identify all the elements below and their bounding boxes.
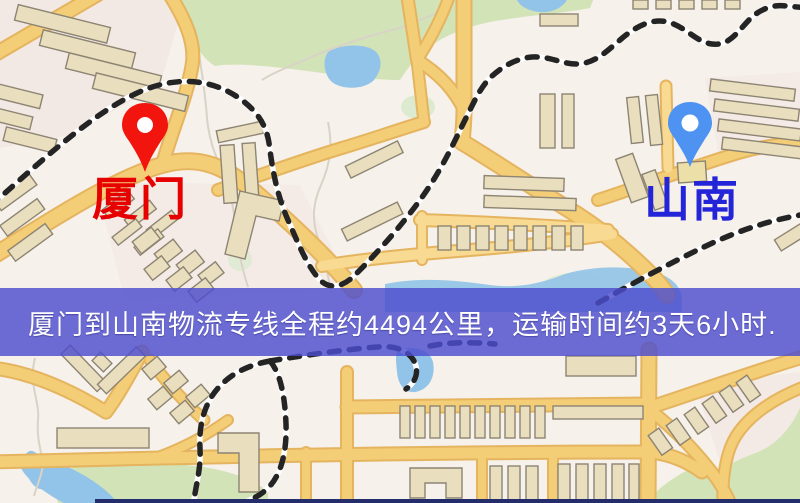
route-info-text: 厦门到山南物流专线全程约4494公里，运输时间约3天6小时.	[0, 303, 777, 342]
origin-city-label: 厦门	[92, 176, 188, 222]
bottom-border-line	[95, 499, 800, 503]
map-canvas	[0, 0, 800, 503]
logistics-route-map: 厦门 山南 厦门到山南物流专线全程约4494公里，运输时间约3天6小时.	[0, 0, 800, 503]
destination-city-label: 山南	[644, 177, 740, 223]
route-info-banner: 厦门到山南物流专线全程约4494公里，运输时间约3天6小时.	[0, 288, 800, 356]
